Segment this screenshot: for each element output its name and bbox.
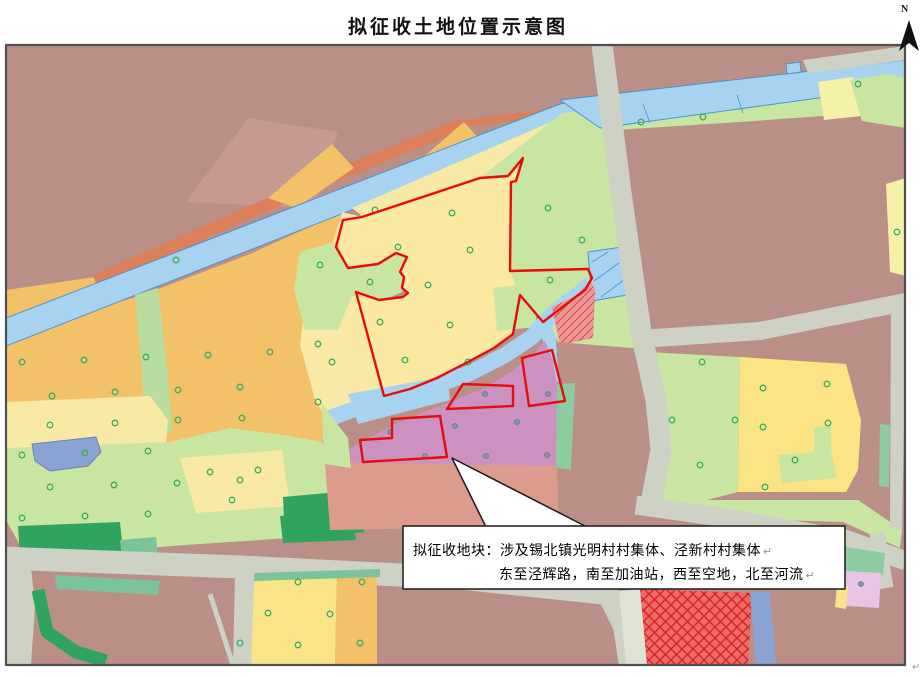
callout-line-1: 拟征收地块：涉及锡北镇光明村村集体、泾新村村集体↵: [413, 540, 773, 560]
north-arrow-label: N: [901, 4, 908, 15]
dot-marker-icon: [453, 424, 458, 429]
dot-marker-icon: [515, 420, 520, 425]
river-tab-1: [786, 62, 801, 74]
callout-line-2: 东至泾辉路，南至加油站，西至空地，北至河流↵: [499, 564, 815, 584]
dot-marker-icon: [859, 582, 864, 587]
green-inclusion-1: [778, 451, 837, 483]
paragraph-return-icon: ↵: [763, 546, 773, 558]
dot-marker-icon: [546, 392, 551, 397]
road-left-curve: [6, 556, 35, 665]
paleyellow-parcel-sw: [180, 450, 290, 513]
green-bar-right: [879, 424, 890, 487]
dot-marker-icon: [545, 453, 550, 458]
paleyellow-bottom-parcel: [251, 574, 337, 665]
callout-line-1-text: 拟征收地块：涉及锡北镇光明村村集体、泾新村村集体: [413, 544, 761, 559]
paragraph-return-icon: ↵: [806, 570, 816, 582]
land-expropriation-map-page: 拟征收土地位置示意图 N 拟征收地块：涉及锡北镇光明村村集体、泾新村村集体↵ 东…: [0, 0, 924, 678]
green-inclusion-2: [814, 426, 831, 453]
mauve-block-center: [556, 342, 646, 384]
callout-line-2-text: 东至泾辉路，南至加油站，西至空地，北至河流: [499, 568, 804, 583]
pink-parcel-bottomright: [845, 571, 881, 608]
paragraph-return-icon: ↵: [912, 662, 920, 673]
orange-bottom-parcel: [335, 572, 377, 665]
dot-marker-icon: [483, 392, 488, 397]
gray-diag-bottom-parcel: [233, 576, 254, 665]
page-title: 拟征收土地位置示意图: [0, 12, 916, 39]
dot-marker-icon: [484, 454, 489, 459]
crosshatch-overlay: [638, 589, 752, 665]
